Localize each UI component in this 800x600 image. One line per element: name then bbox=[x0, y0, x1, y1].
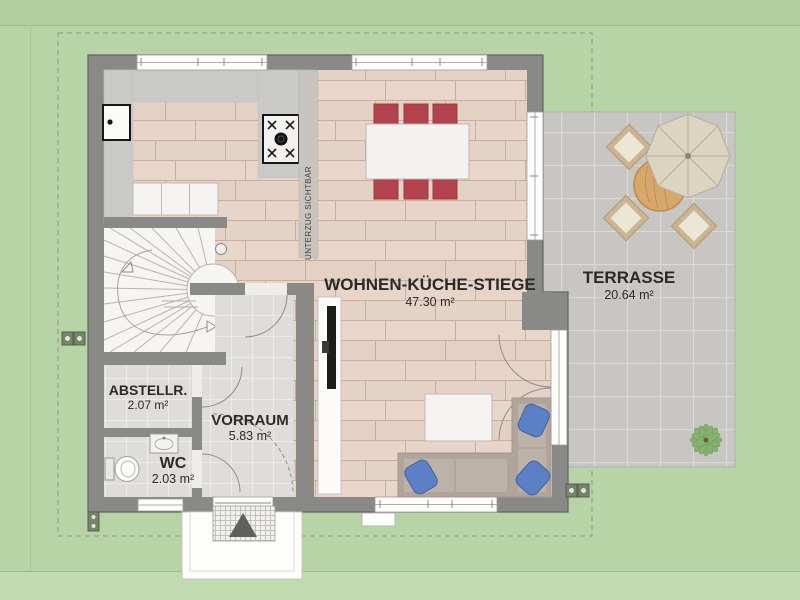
room-label-living: WOHNEN-KÜCHE-STIEGE bbox=[324, 275, 536, 294]
wall-hall-top-left bbox=[190, 283, 245, 295]
power-socket-icon bbox=[566, 484, 589, 497]
garden-upper-band bbox=[0, 0, 800, 25]
parasol-icon bbox=[646, 114, 730, 198]
beam-note: UNTERZUG SICHTBAR bbox=[304, 166, 313, 260]
downpipe-icon bbox=[88, 512, 99, 531]
room-label-storage: ABSTELLR. bbox=[109, 382, 188, 398]
room-label-terrace: TERRASSE bbox=[583, 268, 676, 287]
power-socket-icon bbox=[62, 332, 85, 345]
washbasin-icon bbox=[150, 434, 178, 453]
sink-faucet bbox=[107, 119, 112, 124]
room-label-hall: VORRAUM bbox=[211, 412, 289, 429]
garden-lower-band bbox=[0, 572, 800, 600]
wall-wc-hall-upper bbox=[192, 437, 202, 450]
wall-pier-terrace bbox=[522, 292, 552, 330]
room-label-wc: WC bbox=[160, 455, 187, 472]
window-right bbox=[527, 112, 543, 240]
kitchen-counter-left bbox=[104, 70, 133, 225]
stove-icon bbox=[263, 115, 299, 163]
toilet-icon bbox=[105, 457, 139, 482]
window-wc bbox=[138, 499, 183, 511]
room-area-wc: 2.03 m² bbox=[152, 472, 194, 486]
column bbox=[216, 244, 227, 255]
floor-plan-page: WOHNEN-KÜCHE-STIEGE 47.30 m² TERRASSE 20… bbox=[0, 0, 800, 600]
dining-chair-icon bbox=[404, 178, 428, 199]
dining-chair-icon bbox=[404, 104, 428, 125]
plant-icon bbox=[690, 424, 722, 456]
dining-chair-icon bbox=[374, 178, 398, 199]
window-top-right bbox=[352, 55, 487, 70]
room-area-living: 47.30 m² bbox=[405, 295, 454, 309]
window-top-left bbox=[137, 55, 267, 70]
stair-wall-top bbox=[104, 217, 227, 228]
tv-wall-unit bbox=[318, 297, 341, 494]
wall-stair-bottom bbox=[104, 352, 226, 365]
stair-upper-treads bbox=[133, 183, 218, 215]
window-bottom-living bbox=[375, 497, 497, 512]
opening-living-hall bbox=[245, 283, 287, 295]
exterior-pad bbox=[362, 513, 395, 526]
room-area-storage: 2.07 m² bbox=[128, 398, 169, 412]
dining-table-icon bbox=[366, 124, 469, 179]
wall-hall-living bbox=[296, 283, 314, 497]
room-area-hall: 5.83 m² bbox=[229, 429, 271, 443]
room-area-terrace: 20.64 m² bbox=[604, 288, 653, 302]
dining-chair-icon bbox=[433, 104, 457, 125]
floor-plan-svg: WOHNEN-KÜCHE-STIEGE 47.30 m² TERRASSE 20… bbox=[0, 0, 800, 600]
dining-chair-icon bbox=[374, 104, 398, 125]
wall-wc-hall-lower bbox=[192, 488, 202, 497]
tv-mount bbox=[322, 341, 329, 353]
hall-floor bbox=[202, 295, 293, 497]
dining-set bbox=[366, 104, 469, 199]
kitchen-sink-icon bbox=[103, 105, 130, 140]
dining-chair-icon bbox=[433, 178, 457, 199]
opening-storage bbox=[192, 365, 202, 397]
coffee-table-icon bbox=[425, 394, 492, 441]
